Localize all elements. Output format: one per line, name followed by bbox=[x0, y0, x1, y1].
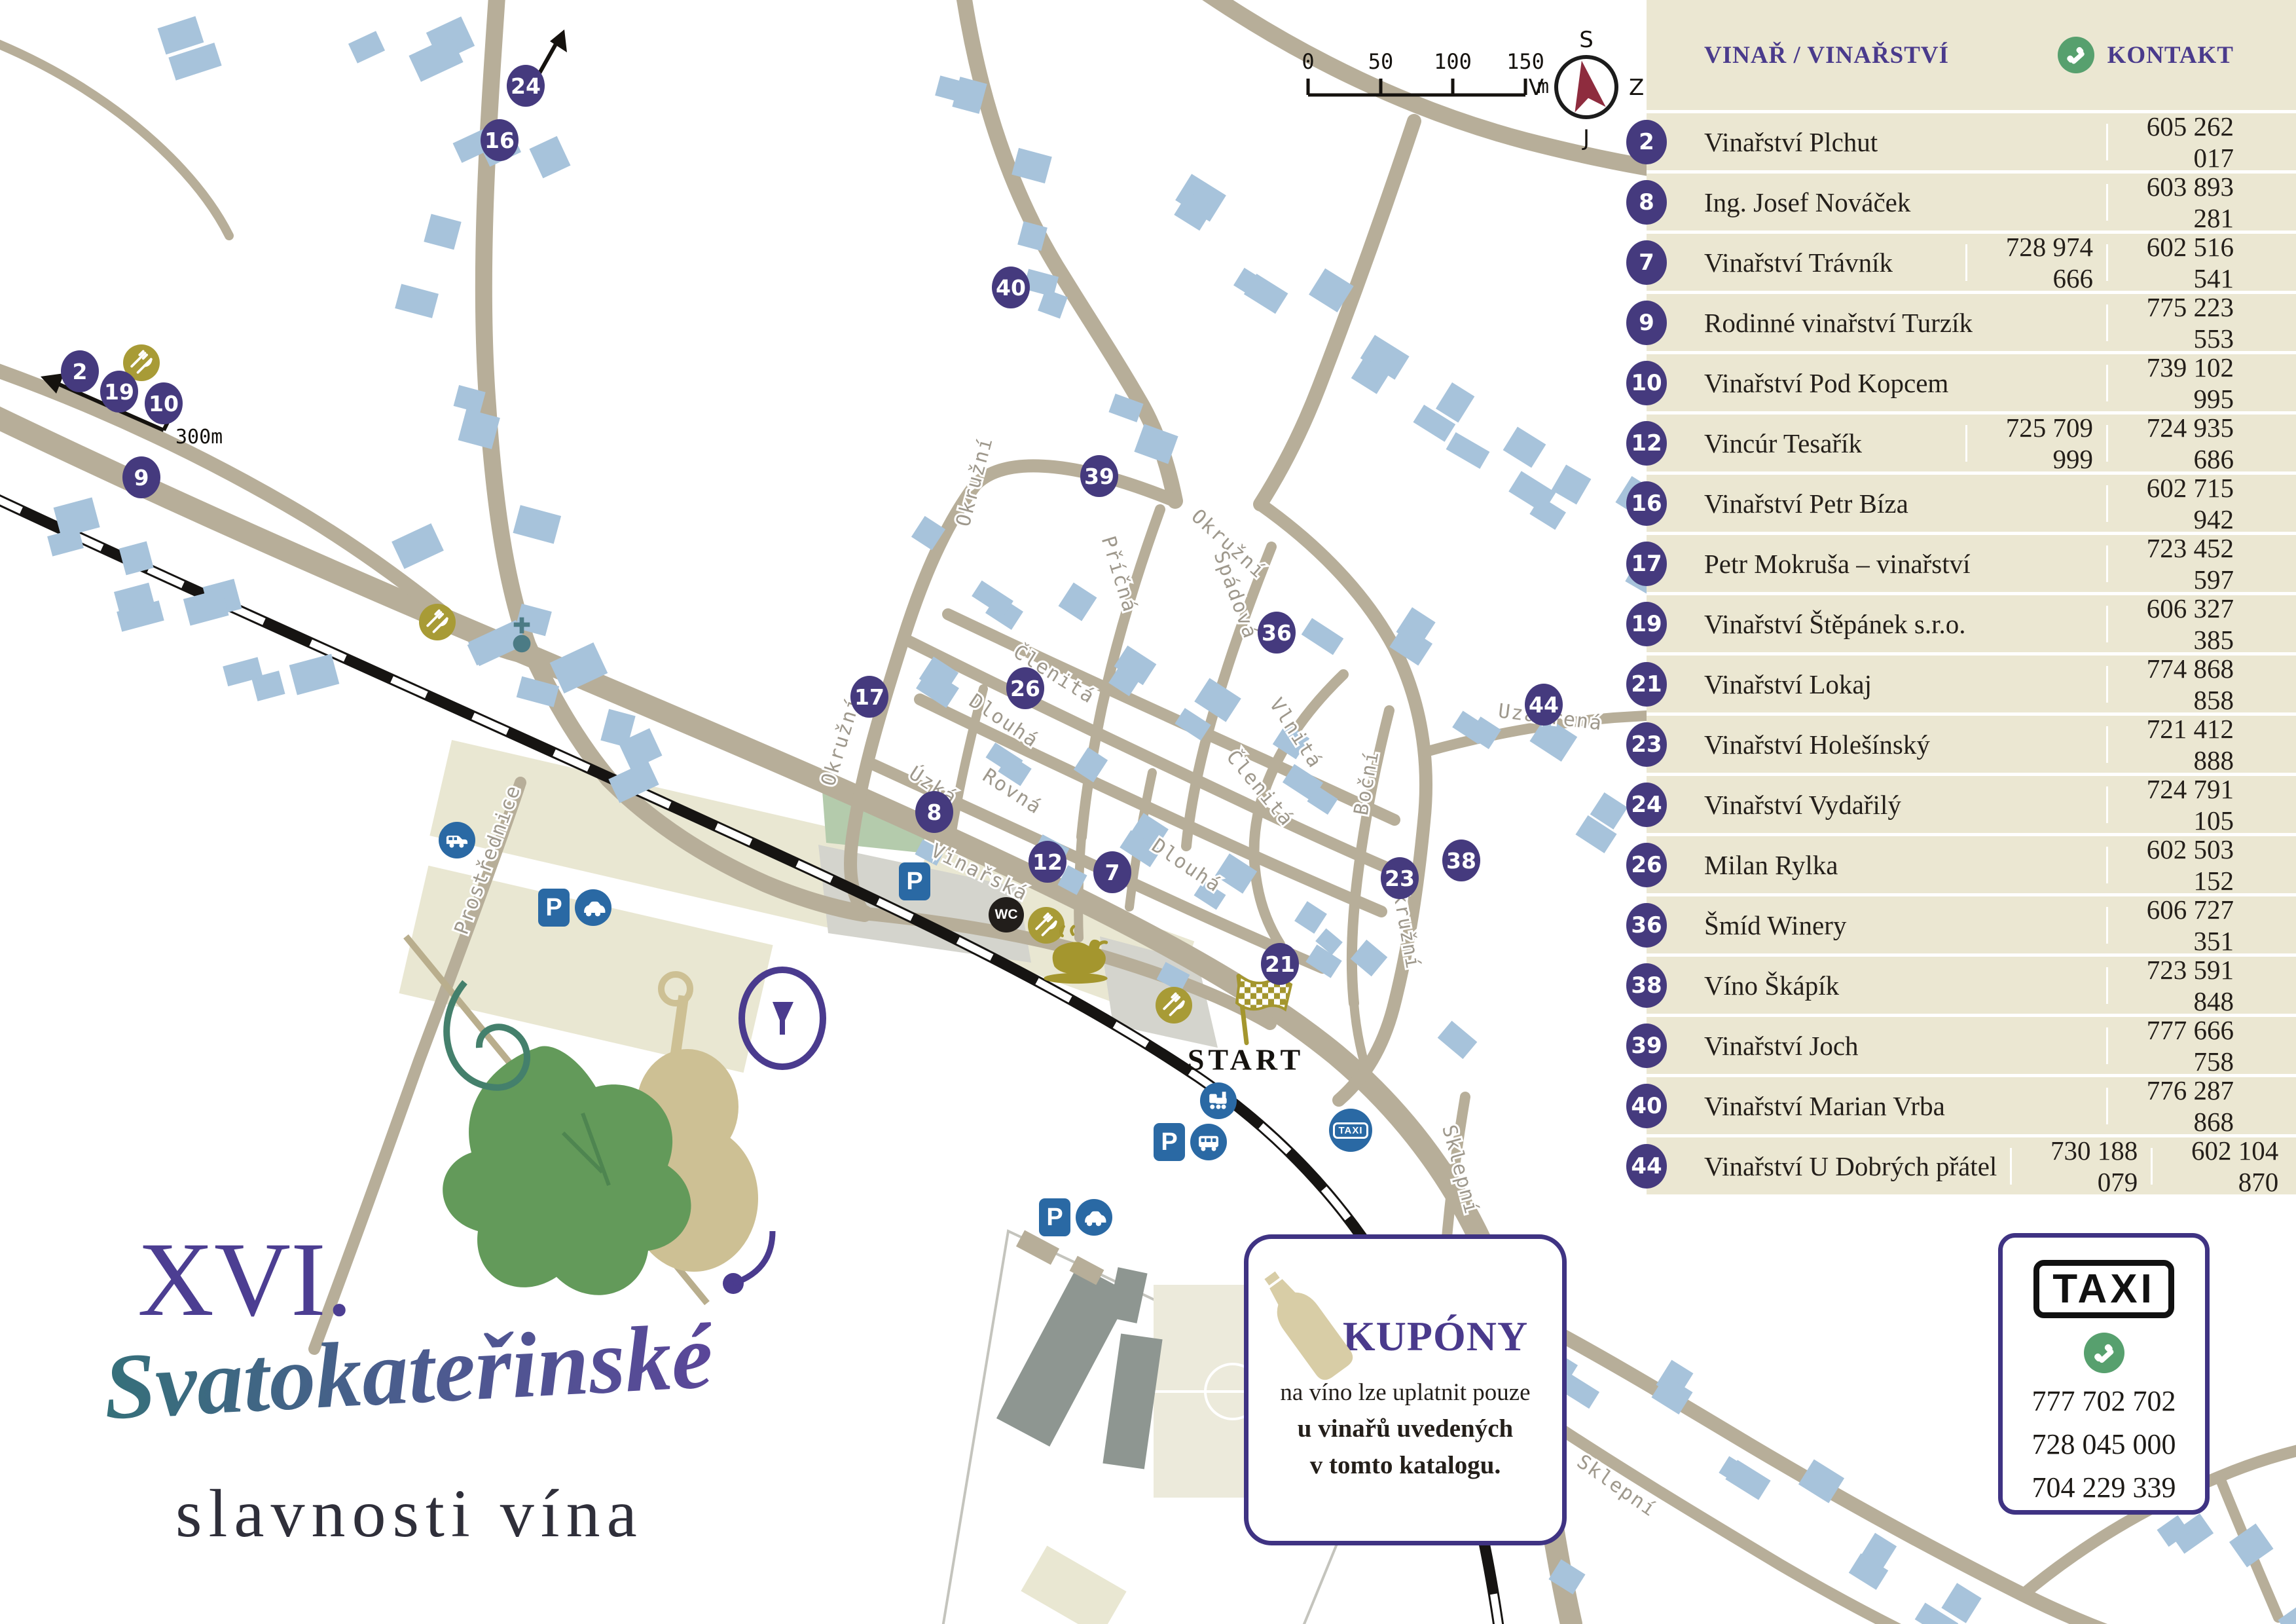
taxi-plate-logo: TAXI bbox=[2033, 1260, 2174, 1318]
winery-row: 44Vinařství U Dobrých přátel730 188 0796… bbox=[1647, 1137, 2296, 1194]
winery-row: 39Vinařství Joch777 666 758 bbox=[1647, 1017, 2296, 1074]
winery-phone-secondary: 730 188 079 bbox=[2012, 1135, 2138, 1198]
winery-phone: 606 727 351 bbox=[2108, 894, 2234, 957]
compass-letter-north: S bbox=[1579, 27, 1594, 53]
winery-name: Vinařství Holešínský bbox=[1704, 729, 2093, 760]
coupon-line2: u vinařů uvedených bbox=[1248, 1411, 1562, 1448]
winery-number-badge: 17 bbox=[1626, 542, 1667, 586]
winery-row: 19Vinařství Štěpánek s.r.o.606 327 385 bbox=[1647, 595, 2296, 652]
taxi-phone-number: 777 702 702 bbox=[2003, 1380, 2205, 1423]
coupon-text: na víno lze uplatnit pouze u vinařů uved… bbox=[1248, 1375, 1562, 1485]
winery-name: Vinařství Marian Vrba bbox=[1704, 1090, 2093, 1122]
winery-row: 40Vinařství Marian Vrba776 287 868 bbox=[1647, 1077, 2296, 1134]
street-label: Okružní bbox=[952, 434, 998, 529]
winery-list: 2Vinařství Plchut605 262 0178Ing. Josef … bbox=[1647, 113, 2296, 1194]
scale-tick-label: 50 bbox=[1368, 49, 1394, 74]
winery-phone: 602 715 942 bbox=[2108, 472, 2234, 535]
winery-phone: 723 452 597 bbox=[2108, 532, 2234, 595]
winery-row: 2Vinařství Plchut605 262 017 bbox=[1647, 113, 2296, 170]
phone-icon bbox=[2084, 1333, 2124, 1373]
winery-phone: 602 104 870 bbox=[2153, 1135, 2278, 1198]
winery-name: Vinařství Pod Kopcem bbox=[1704, 367, 2093, 399]
winery-number-badge: 8 bbox=[1626, 180, 1667, 225]
winery-row: 23Vinařství Holešínský721 412 888 bbox=[1647, 716, 2296, 773]
winery-phone: 605 262 017 bbox=[2108, 111, 2234, 174]
winery-phone: 602 503 152 bbox=[2108, 834, 2234, 896]
winery-row: 38Víno Škápík723 591 848 bbox=[1647, 957, 2296, 1014]
festival-map-poster: OkružníOkružníOkružníOkružníPříčnáSpádov… bbox=[0, 0, 2296, 1624]
winery-phone: 724 935 686 bbox=[2108, 412, 2234, 475]
winery-number-badge: 9 bbox=[1626, 301, 1667, 345]
winery-name: Vinařství Joch bbox=[1704, 1030, 2093, 1061]
winery-name: Milan Rylka bbox=[1704, 849, 2093, 881]
winery-name: Vinařství Plchut bbox=[1704, 126, 2093, 158]
winery-number-badge: 12 bbox=[1626, 421, 1667, 466]
taxi-phone-number: 728 045 000 bbox=[2003, 1423, 2205, 1466]
winery-name: Víno Škápík bbox=[1704, 970, 2093, 1001]
winery-name: Šmíd Winery bbox=[1704, 910, 2093, 941]
compass-letter-south: J bbox=[1582, 125, 1590, 151]
winery-number-badge: 19 bbox=[1626, 602, 1667, 646]
winery-phone: 721 412 888 bbox=[2108, 713, 2234, 776]
legend-header: VINAŘ / VINAŘSTVÍ KONTAKT bbox=[1647, 0, 2296, 110]
winery-phone: 723 591 848 bbox=[2108, 954, 2234, 1017]
legend-header-winery: VINAŘ / VINAŘSTVÍ bbox=[1704, 41, 2058, 69]
winery-phone: 777 666 758 bbox=[2108, 1014, 2234, 1077]
winery-name: Vinařství Štěpánek s.r.o. bbox=[1704, 608, 2093, 640]
winery-name: Ing. Josef Nováček bbox=[1704, 187, 2093, 218]
scale-tick-label: 0 bbox=[1302, 49, 1314, 74]
winery-number-badge: 7 bbox=[1626, 240, 1667, 285]
winery-row: 21Vinařství Lokaj774 868 858 bbox=[1647, 655, 2296, 712]
winery-name: Petr Mokruša – vinařství bbox=[1704, 548, 2093, 580]
compass-letter-east: Z bbox=[1629, 75, 1644, 101]
winery-number-badge: 44 bbox=[1626, 1144, 1667, 1189]
winery-number-badge: 2 bbox=[1626, 120, 1667, 164]
compass-letter-west: V bbox=[1529, 75, 1544, 101]
winery-name: Vinařství Petr Bíza bbox=[1704, 488, 2093, 519]
winery-row: 9Rodinné vinařství Turzík775 223 553 bbox=[1647, 294, 2296, 351]
logo-subtitle: slavnosti vína bbox=[175, 1475, 644, 1553]
winery-row: 24Vinařství Vydařilý724 791 105 bbox=[1647, 776, 2296, 833]
winery-number-badge: 38 bbox=[1626, 963, 1667, 1008]
winery-number-badge: 16 bbox=[1626, 481, 1667, 526]
coupon-line1: na víno lze uplatnit pouze bbox=[1248, 1375, 1562, 1411]
winery-row: 10Vinařství Pod Kopcem739 102 995 bbox=[1647, 354, 2296, 411]
winery-phone: 776 287 868 bbox=[2108, 1075, 2234, 1137]
winery-name: Vinařství Lokaj bbox=[1704, 669, 2093, 700]
winery-name: Rodinné vinařství Turzík bbox=[1704, 307, 2093, 339]
street-label: Úzká bbox=[905, 761, 962, 810]
winery-name: Vinařství Vydařilý bbox=[1704, 789, 2093, 821]
winery-row: 26Milan Rylka602 503 152 bbox=[1647, 836, 2296, 893]
winery-row: 7Vinařství Trávník728 974 666602 516 541 bbox=[1647, 234, 2296, 291]
winery-number-badge: 26 bbox=[1626, 843, 1667, 887]
winery-phone: 774 868 858 bbox=[2108, 653, 2234, 716]
taxi-phone-numbers: 777 702 702728 045 000704 229 339 bbox=[2003, 1380, 2205, 1509]
winery-phone: 775 223 553 bbox=[2108, 291, 2234, 354]
winery-number-badge: 10 bbox=[1626, 361, 1667, 405]
winery-number-badge: 36 bbox=[1626, 903, 1667, 948]
phone-icon bbox=[2058, 37, 2094, 73]
winery-number-badge: 24 bbox=[1626, 783, 1667, 827]
coupon-info-box: KUPÓNY na víno lze uplatnit pouze u vina… bbox=[1244, 1234, 1567, 1545]
winery-phone-secondary: 725 709 999 bbox=[1967, 412, 2093, 475]
winery-name: Vinařství U Dobrých přátel bbox=[1704, 1151, 1997, 1182]
winery-number-badge: 40 bbox=[1626, 1084, 1667, 1128]
winery-row: 8Ing. Josef Nováček603 893 281 bbox=[1647, 174, 2296, 231]
legend-header-contact: KONTAKT bbox=[2107, 41, 2234, 69]
scale-tick-label: 150 bbox=[1506, 49, 1544, 74]
winery-phone: 606 327 385 bbox=[2108, 593, 2234, 655]
taxi-phone-number: 704 229 339 bbox=[2003, 1466, 2205, 1509]
winery-name: Vincúr Tesařík bbox=[1704, 428, 1952, 459]
winery-phone: 739 102 995 bbox=[2108, 352, 2234, 415]
winery-row: 17Petr Mokruša – vinařství723 452 597 bbox=[1647, 535, 2296, 592]
winery-phone: 724 791 105 bbox=[2108, 773, 2234, 836]
winery-name: Vinařství Trávník bbox=[1704, 247, 1952, 278]
winery-number-badge: 39 bbox=[1626, 1024, 1667, 1068]
distance-300m-label: 300m bbox=[175, 426, 223, 449]
taxi-info-box: TAXI 777 702 702728 045 000704 229 339 bbox=[1998, 1233, 2210, 1515]
winery-row: 36Šmíd Winery606 727 351 bbox=[1647, 896, 2296, 953]
winery-legend-panel: VINAŘ / VINAŘSTVÍ KONTAKT 2Vinařství Plc… bbox=[1647, 0, 2296, 1194]
logo-decoration-violin-leaf bbox=[367, 917, 864, 1349]
coupon-line3: v tomto katalogu. bbox=[1248, 1447, 1562, 1485]
scale-tick-label: 100 bbox=[1434, 49, 1472, 74]
winery-phone-secondary: 728 974 666 bbox=[1967, 231, 2093, 294]
winery-row: 16Vinařství Petr Bíza602 715 942 bbox=[1647, 475, 2296, 532]
winery-phone: 603 893 281 bbox=[2108, 171, 2234, 234]
winery-number-badge: 21 bbox=[1626, 662, 1667, 707]
winery-number-badge: 23 bbox=[1626, 722, 1667, 767]
winery-row: 12Vincúr Tesařík725 709 999724 935 686 bbox=[1647, 415, 2296, 471]
start-label: START bbox=[1188, 1043, 1304, 1077]
winery-phone: 602 516 541 bbox=[2108, 231, 2234, 294]
